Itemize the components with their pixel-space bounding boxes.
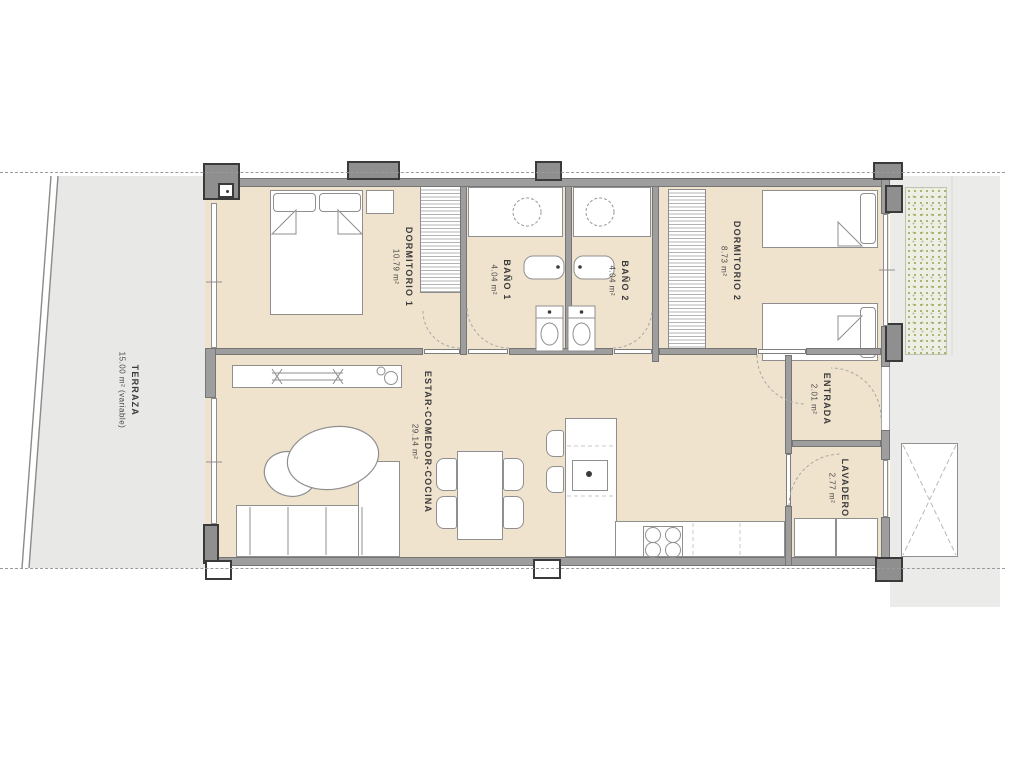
room-area: 2.77 m² [825,459,837,518]
wall-dorm1-bano1 [460,186,467,355]
chair [436,458,457,491]
tv-console [232,365,402,388]
room-name: DORMITORIO 1 [401,227,415,307]
shower-bano-1 [468,187,563,237]
door-leaf-dormitorio-2 [758,349,806,354]
stool [546,466,564,493]
room-area: 2.01 m² [807,373,819,425]
wardrobe-dormitorio-2 [668,189,706,353]
pillow [273,193,316,212]
wall-bano2-dorm2 [652,186,659,362]
boundary-line-top [0,172,1005,173]
column [885,185,903,213]
wall-entrada-left [785,355,792,454]
column [875,557,903,582]
stool [546,430,564,457]
room-name: BAÑO 2 [617,260,631,301]
wall-hall [659,348,757,355]
nightstand [366,190,394,214]
room-area: 10.79 m² [389,227,401,307]
column [535,161,562,181]
entry-opening [881,367,890,430]
label-estar-comedor-cocina: ESTAR-COMEDOR-COCINA 29.14 m² [408,371,434,513]
sofa-chaise [358,461,400,557]
column-box [533,559,561,579]
wall-hall [806,348,881,355]
room-area: 15.00 m² (variable) [115,352,127,429]
wall-hall [509,348,613,355]
label-terraza: TERRAZA 15.00 m² (variable) [115,352,141,429]
floor-plan: TERRAZA 15.00 m² (variable) DORMITORIO 1… [0,0,1024,768]
window-dormitorio-2 [883,214,888,326]
room-area: 8.73 m² [717,221,729,301]
window-living [211,398,217,524]
chair [436,496,457,529]
pillow [319,193,361,212]
room-area: 4.04 m² [605,260,617,301]
patio-skylight [901,443,958,557]
chair [503,458,524,491]
room-name: BAÑO 1 [499,259,513,300]
window-dormitorio-1 [211,203,217,348]
column-box [205,560,232,580]
door-leaf-bano-1 [468,349,508,354]
kitchen-sink [572,460,608,491]
window-lavadero [883,460,888,517]
column [347,161,400,180]
dining-table [457,451,503,540]
column-box [218,183,234,198]
kitchen-counter [615,521,785,557]
label-bano-1: BAÑO 1 4.04 m² [487,259,513,300]
label-bano-2: BAÑO 2 4.04 m² [605,260,631,301]
label-entrada: ENTRADA 2.01 m² [807,373,833,425]
door-leaf-bano-2 [614,349,652,354]
wall-right [881,430,890,460]
column [203,524,219,564]
garden-strip [905,187,947,355]
label-dormitorio-1: DORMITORIO 1 10.79 m² [389,227,415,307]
wall-lavadero-left [785,506,792,566]
wall-left-stub [205,348,216,398]
room-area: 4.04 m² [487,259,499,300]
door-leaf-dormitorio-1 [424,349,460,354]
room-area: 29.14 m² [408,371,420,513]
shower-bano-2 [573,187,651,237]
boundary-line-bottom [0,568,1005,569]
label-dormitorio-2: DORMITORIO 2 8.73 m² [717,221,743,301]
wall-entrada-lavadero [792,440,881,447]
wall-bano1-bano2 [565,186,572,355]
cooktop [643,526,683,557]
washer [794,518,836,557]
pillow [860,193,876,244]
column-dot [226,190,229,193]
dryer [836,518,878,557]
column [885,323,903,362]
door-leaf-lavadero [786,454,791,506]
room-name: ESTAR-COMEDOR-COCINA [420,371,434,513]
room-name: LAVADERO [837,459,851,518]
label-lavadero: LAVADERO 2.77 m² [825,459,851,518]
chair [503,496,524,529]
room-name: DORMITORIO 2 [729,221,743,301]
room-name: ENTRADA [819,373,833,425]
column [873,162,903,180]
wall-hall [205,348,423,355]
room-entrada [792,362,881,440]
wardrobe-dormitorio-1 [420,186,461,293]
room-name: TERRAZA [127,352,141,429]
